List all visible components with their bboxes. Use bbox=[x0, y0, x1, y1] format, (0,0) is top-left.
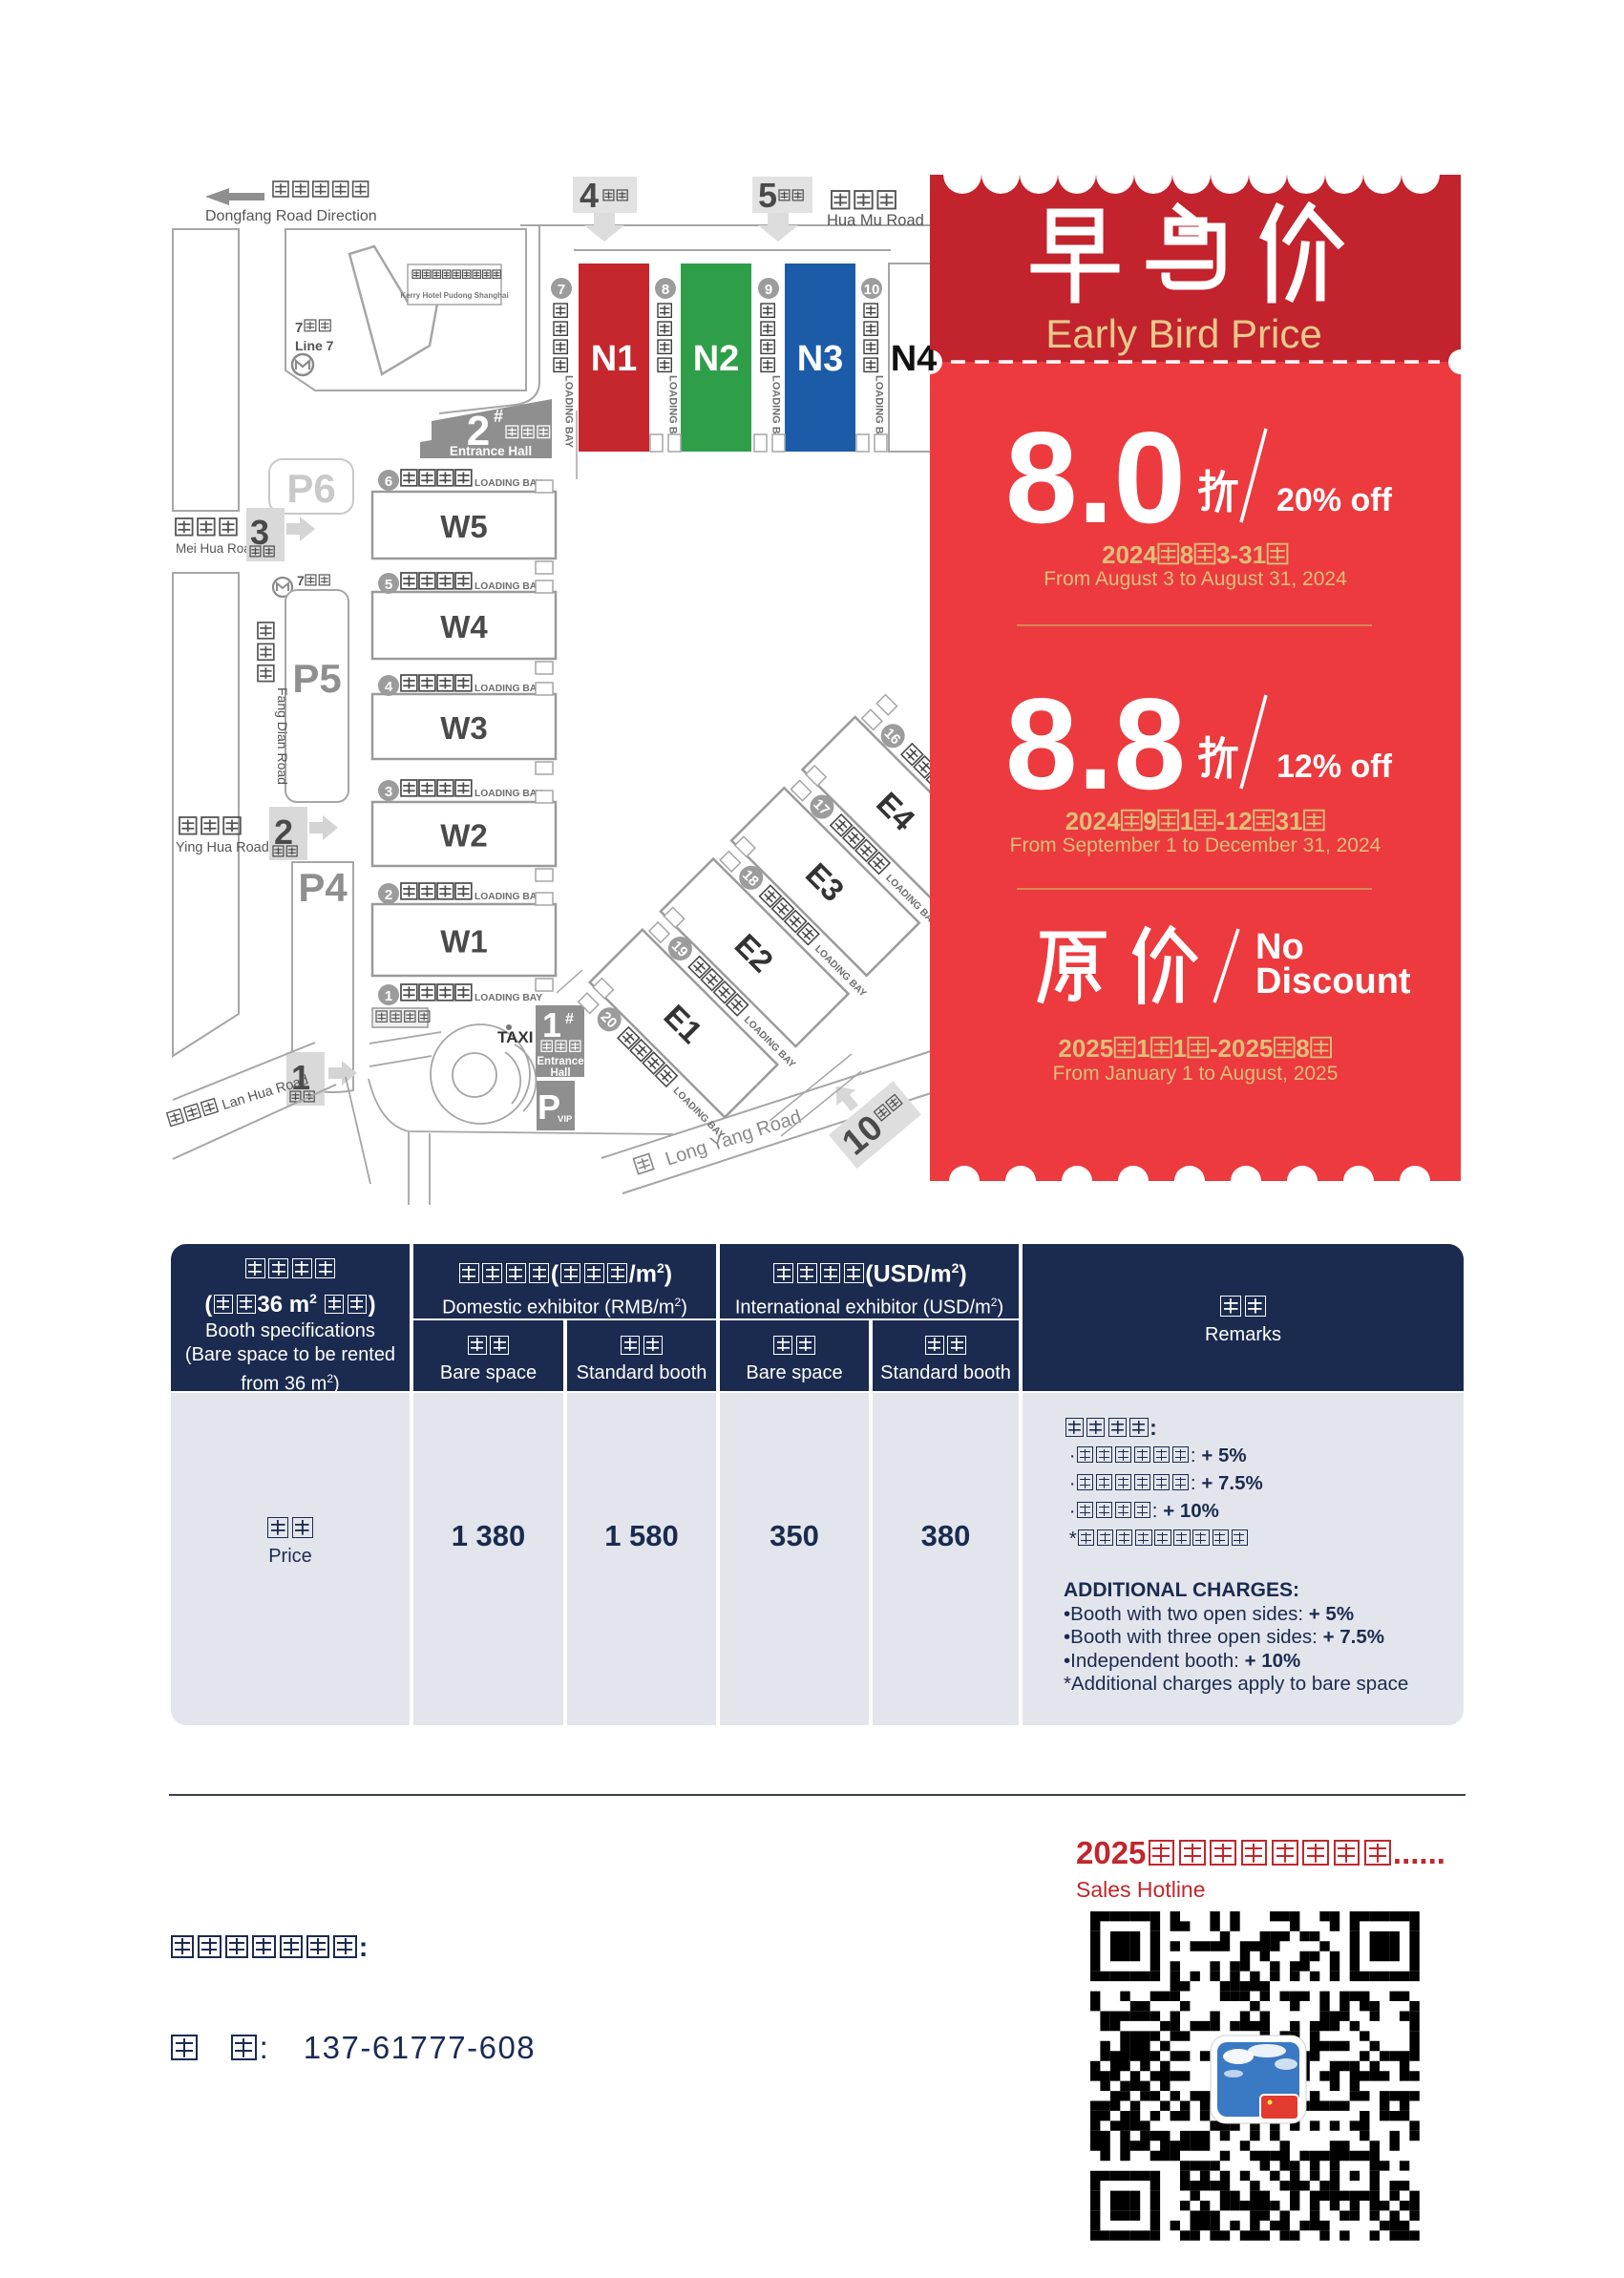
svg-text:Discount: Discount bbox=[1255, 961, 1411, 1002]
svg-text:7: 7 bbox=[297, 573, 305, 588]
svg-text:Hall: Hall bbox=[550, 1067, 570, 1079]
svg-text:W2: W2 bbox=[440, 818, 488, 854]
svg-text:N2: N2 bbox=[693, 339, 740, 379]
svg-text:#: # bbox=[565, 1011, 574, 1027]
svg-text:1: 1 bbox=[1180, 807, 1193, 835]
svg-text:Kerry Hotel Pudong Shanghai: Kerry Hotel Pudong Shanghai bbox=[400, 291, 508, 300]
svg-text:9: 9 bbox=[765, 282, 772, 298]
svg-text:7: 7 bbox=[558, 282, 565, 298]
svg-text:20% off: 20% off bbox=[1276, 482, 1393, 518]
svg-text:8.0: 8.0 bbox=[1005, 405, 1186, 550]
svg-text:LOADING BAY: LOADING BAY bbox=[475, 478, 542, 489]
svg-text:3: 3 bbox=[385, 784, 392, 800]
svg-text:8: 8 bbox=[662, 282, 669, 298]
svg-text:3-31: 3-31 bbox=[1216, 540, 1266, 569]
svg-text:W3: W3 bbox=[440, 710, 488, 746]
svg-text:6: 6 bbox=[385, 474, 392, 490]
svg-text:8: 8 bbox=[1296, 1034, 1309, 1063]
svg-text:Entrance Hall: Entrance Hall bbox=[450, 444, 532, 458]
svg-text:W4: W4 bbox=[440, 609, 488, 644]
svg-text:From September 1 to December 3: From September 1 to December 31, 2024 bbox=[1010, 834, 1381, 856]
svg-text:31: 31 bbox=[1276, 807, 1303, 835]
svg-text:4: 4 bbox=[385, 679, 393, 695]
svg-text:Mei Hua Road: Mei Hua Road bbox=[176, 541, 258, 556]
svg-text:N3: N3 bbox=[797, 339, 844, 379]
svg-text:LOADING BAY: LOADING BAY bbox=[475, 892, 542, 902]
svg-text:LOADING BAY: LOADING BAY bbox=[475, 684, 542, 694]
svg-text:10: 10 bbox=[864, 282, 880, 298]
svg-text:1: 1 bbox=[1173, 1034, 1187, 1063]
svg-text:Early Bird Price: Early Bird Price bbox=[1045, 311, 1321, 356]
svg-text:LOADING BAY: LOADING BAY bbox=[475, 789, 542, 799]
svg-text:From January 1 to August, 2025: From January 1 to August, 2025 bbox=[1053, 1063, 1339, 1085]
svg-text:2025: 2025 bbox=[1058, 1034, 1113, 1063]
svg-text:P6: P6 bbox=[286, 466, 335, 511]
svg-text:1: 1 bbox=[385, 988, 392, 1004]
svg-text:Entrance: Entrance bbox=[537, 1056, 583, 1067]
svg-text:1: 1 bbox=[542, 1005, 561, 1044]
svg-text:5: 5 bbox=[385, 577, 392, 593]
svg-text:1: 1 bbox=[1136, 1034, 1149, 1063]
svg-text:2024: 2024 bbox=[1102, 540, 1157, 569]
svg-text:Ying Hua Road: Ying Hua Road bbox=[176, 840, 269, 855]
svg-text:LOADING BAY: LOADING BAY bbox=[475, 993, 542, 1003]
svg-text:9: 9 bbox=[1143, 807, 1156, 835]
svg-text:-12: -12 bbox=[1216, 807, 1253, 835]
svg-text:2: 2 bbox=[385, 887, 392, 903]
svg-text:P4: P4 bbox=[298, 865, 348, 910]
svg-text:N1: N1 bbox=[591, 339, 638, 379]
svg-text:4: 4 bbox=[580, 176, 599, 215]
svg-text:12% off: 12% off bbox=[1276, 749, 1393, 785]
svg-text:P5: P5 bbox=[292, 656, 341, 701]
svg-text:Fang Dian Road: Fang Dian Road bbox=[275, 687, 290, 785]
svg-text:VIP: VIP bbox=[558, 1114, 573, 1125]
svg-text:Dongfang Road Direction: Dongfang Road Direction bbox=[205, 208, 377, 224]
svg-text:TAXI: TAXI bbox=[497, 1028, 533, 1046]
svg-text:From August 3 to August 31, 20: From August 3 to August 31, 2024 bbox=[1044, 568, 1347, 590]
svg-text:#: # bbox=[494, 407, 503, 426]
svg-text:W1: W1 bbox=[440, 924, 488, 960]
svg-text:LOADING BAY: LOADING BAY bbox=[475, 581, 542, 592]
svg-text:7: 7 bbox=[295, 320, 303, 336]
svg-text:2024: 2024 bbox=[1065, 807, 1121, 835]
svg-text:8: 8 bbox=[1180, 540, 1193, 569]
svg-text:Line 7: Line 7 bbox=[295, 338, 334, 353]
svg-text:-2025: -2025 bbox=[1210, 1034, 1274, 1063]
svg-text:5: 5 bbox=[758, 176, 777, 215]
svg-text:LOADING BAY: LOADING BAY bbox=[563, 375, 575, 449]
svg-text:W5: W5 bbox=[440, 509, 488, 544]
svg-text:8.8: 8.8 bbox=[1005, 671, 1186, 816]
